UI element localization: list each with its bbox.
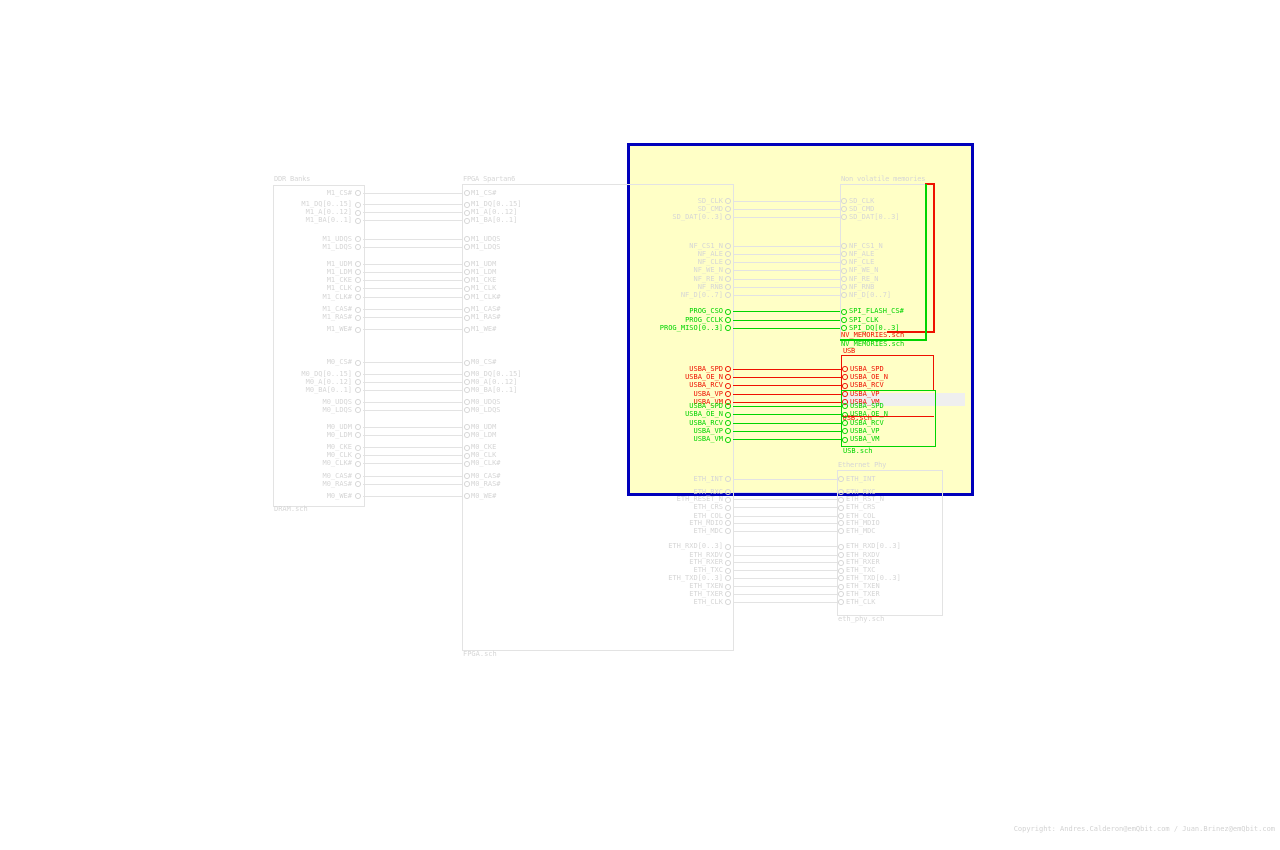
net-wire[interactable] (733, 209, 840, 210)
net-label-right[interactable]: USBA_OE_N (850, 411, 888, 418)
pin-glyph[interactable] (725, 391, 731, 397)
net-wire[interactable] (363, 402, 462, 403)
net-wire[interactable] (363, 362, 462, 363)
net-label-left[interactable]: NF_ALE (553, 251, 723, 258)
pin-glyph[interactable] (464, 315, 470, 321)
net-label-left[interactable]: M1_CLK (182, 285, 352, 292)
net-wire[interactable] (733, 385, 841, 386)
net-label-right[interactable]: M1_CLK# (471, 294, 501, 301)
pin-glyph[interactable] (841, 268, 847, 274)
net-wire[interactable] (733, 287, 840, 288)
pin-glyph[interactable] (838, 497, 844, 503)
net-wire[interactable] (733, 531, 837, 532)
net-wire[interactable] (363, 476, 462, 477)
net-wire[interactable] (363, 329, 462, 330)
net-label-right[interactable]: SD_CLK (849, 198, 874, 205)
pin-glyph[interactable] (725, 198, 731, 204)
net-wire[interactable] (363, 297, 462, 298)
net-label-right[interactable]: M1_CAS# (471, 306, 501, 313)
net-label-left[interactable]: M0_CLK (182, 452, 352, 459)
net-label-right[interactable]: M0_CLK# (471, 460, 501, 467)
pin-glyph[interactable] (355, 315, 361, 321)
net-label-left[interactable]: M1_LDM (182, 269, 352, 276)
pin-glyph[interactable] (355, 218, 361, 224)
net-wire[interactable] (363, 427, 462, 428)
net-label-left[interactable]: M0_A[0..12] (182, 379, 352, 386)
pin-glyph[interactable] (841, 276, 847, 282)
sheet-file-fpga[interactable]: FPGA.sch (463, 651, 497, 658)
net-label-left[interactable]: M1_CAS# (182, 306, 352, 313)
net-label-right[interactable]: SD_DAT[0..3] (849, 214, 900, 221)
net-wire[interactable] (733, 594, 837, 595)
net-label-left[interactable]: M0_CLK# (182, 460, 352, 467)
net-label-right[interactable]: M1_BA[0..1] (471, 217, 517, 224)
net-wire[interactable] (733, 246, 840, 247)
net-label-right[interactable]: SPI_CLK (849, 317, 879, 324)
net-wire[interactable] (363, 309, 462, 310)
pin-glyph[interactable] (725, 497, 731, 503)
pin-glyph[interactable] (842, 437, 848, 443)
net-wire[interactable] (733, 262, 840, 263)
net-label-right[interactable]: NF_CLE (849, 259, 874, 266)
pin-glyph[interactable] (725, 317, 731, 323)
net-label-left[interactable]: ETH_MDC (553, 528, 723, 535)
net-label-right[interactable]: M0_CLK (471, 452, 496, 459)
ghost-segment-red (933, 183, 935, 332)
net-label-right[interactable]: M1_UDM (471, 261, 496, 268)
net-wire[interactable] (363, 239, 462, 240)
net-label-left[interactable]: M1_WE# (182, 326, 352, 333)
sheet-title-usb_red[interactable]: USB (843, 348, 855, 355)
net-label-left[interactable]: NF_D[0..7] (553, 292, 723, 299)
pin-glyph[interactable] (355, 493, 361, 499)
pin-glyph[interactable] (464, 493, 470, 499)
net-label-left[interactable]: M0_UDQS (182, 399, 352, 406)
net-label-left[interactable]: SD_CLK (553, 198, 723, 205)
net-wire[interactable] (363, 193, 462, 194)
pin-glyph[interactable] (838, 568, 844, 574)
net-wire[interactable] (733, 279, 840, 280)
pin-glyph[interactable] (725, 383, 731, 389)
net-label-right[interactable]: NF_D[0..7] (849, 292, 891, 299)
net-wire[interactable] (733, 546, 837, 547)
pin-glyph[interactable] (355, 210, 361, 216)
pin-glyph[interactable] (725, 476, 731, 482)
net-label-left[interactable]: USBA_RCV (553, 420, 723, 427)
net-label-right[interactable]: SPI_FLASH_CS# (849, 308, 904, 315)
net-wire[interactable] (733, 586, 837, 587)
net-label-right[interactable]: M1_LDQS (471, 244, 501, 251)
net-label-right[interactable]: M0_CS# (471, 359, 496, 366)
net-wire[interactable] (363, 382, 462, 383)
pin-glyph[interactable] (464, 210, 470, 216)
net-label-right[interactable]: M1_UDQS (471, 236, 501, 243)
net-wire[interactable] (733, 423, 841, 424)
net-label-right[interactable]: ETH_MDIO (846, 520, 880, 527)
net-label-left[interactable]: M1_UDQS (182, 236, 352, 243)
pin-glyph[interactable] (464, 473, 470, 479)
net-label-left[interactable]: USBA_OE_N (553, 374, 723, 381)
net-label-left[interactable]: USBA_VP (553, 428, 723, 435)
net-label-left[interactable]: ETH_TXER (553, 591, 723, 598)
net-label-right[interactable]: ETH_CRS (846, 504, 876, 511)
sheet-file-eth[interactable]: eth_phy.sch (838, 616, 884, 623)
net-label-right[interactable]: SD_CMD (849, 206, 874, 213)
net-label-right[interactable]: USBA_OE_N (850, 374, 888, 381)
net-label-left[interactable]: M0_BA[0..1] (182, 387, 352, 394)
net-label-left[interactable]: PROG_CCLK (553, 317, 723, 324)
pin-glyph[interactable] (842, 391, 848, 397)
net-label-left[interactable]: SD_CMD (553, 206, 723, 213)
net-label-right[interactable]: USBA_RCV (850, 382, 884, 389)
pin-glyph[interactable] (838, 544, 844, 550)
net-wire[interactable] (733, 406, 841, 407)
pin-glyph[interactable] (464, 360, 470, 366)
net-label-left[interactable]: ETH_TXD[0..3] (553, 575, 723, 582)
pin-glyph[interactable] (725, 412, 731, 418)
floating-sheet-file-label: NV_MEMORIES.sch (841, 341, 904, 348)
net-label-right[interactable]: ETH_TXD[0..3] (846, 575, 901, 582)
net-label-left[interactable]: M1_UDM (182, 261, 352, 268)
net-label-left[interactable]: ETH_MDIO (553, 520, 723, 527)
net-label-left[interactable]: ETH_CRS (553, 504, 723, 511)
net-label-right[interactable]: ETH_INT (846, 476, 876, 483)
pin-glyph[interactable] (355, 202, 361, 208)
net-wire[interactable] (733, 431, 841, 432)
pin-glyph[interactable] (838, 584, 844, 590)
net-label-right[interactable]: M0_RAS# (471, 481, 501, 488)
net-label-right[interactable]: NF_ALE (849, 251, 874, 258)
net-label-left[interactable]: NF_WE_N (553, 267, 723, 274)
net-wire[interactable] (733, 369, 841, 370)
net-label-left[interactable]: NF_RNB (553, 284, 723, 291)
net-label-left[interactable]: USBA_SPD (553, 366, 723, 373)
net-wire[interactable] (733, 320, 840, 321)
net-wire[interactable] (363, 390, 462, 391)
net-wire[interactable] (733, 270, 840, 271)
pin-glyph[interactable] (838, 489, 844, 495)
net-wire[interactable] (733, 602, 837, 603)
sheet-file-dram[interactable]: DRAM.sch (274, 506, 308, 513)
pin-glyph[interactable] (464, 307, 470, 313)
net-label-left[interactable]: M1_LDQS (182, 244, 352, 251)
pin-glyph[interactable] (838, 513, 844, 519)
net-label-left[interactable]: USBA_OE_N (553, 411, 723, 418)
net-label-right[interactable]: USBA_VP (850, 391, 880, 398)
net-label-left[interactable]: SD_DAT[0..3] (553, 214, 723, 221)
pin-glyph[interactable] (464, 294, 470, 300)
net-label-right[interactable]: M0_A[0..12] (471, 379, 517, 386)
sheet-title-fpga[interactable]: FPGA Spartan6 (463, 176, 515, 183)
net-label-left[interactable]: M1_CLK# (182, 294, 352, 301)
pin-glyph[interactable] (725, 513, 731, 519)
net-label-left[interactable]: M1_BA[0..1] (182, 217, 352, 224)
net-label-right[interactable]: ETH_CLK (846, 599, 876, 606)
pin-glyph[interactable] (841, 251, 847, 257)
pin-glyph[interactable] (725, 568, 731, 574)
net-label-right[interactable]: M0_LDQS (471, 407, 501, 414)
copyright-text: Copyright: Andres.Calderon@emQbit.com / … (1014, 825, 1275, 833)
net-label-left[interactable]: PROG_CSO (553, 308, 723, 315)
net-label-right[interactable]: M0_UDM (471, 424, 496, 431)
pin-glyph[interactable] (355, 473, 361, 479)
net-label-right[interactable]: ETH_RXD[0..3] (846, 543, 901, 550)
pin-glyph[interactable] (842, 366, 848, 372)
net-label-left[interactable]: M0_WE# (182, 493, 352, 500)
net-label-left[interactable]: M1_RAS# (182, 314, 352, 321)
net-label-right[interactable]: M0_UDQS (471, 399, 501, 406)
pin-glyph[interactable] (464, 236, 470, 242)
pin-glyph[interactable] (842, 412, 848, 418)
net-label-left[interactable]: USBA_VP (553, 391, 723, 398)
net-label-left[interactable]: M1_CS# (182, 190, 352, 197)
pin-glyph[interactable] (464, 453, 470, 459)
schematic-canvas[interactable]: DDR BanksDRAM.schFPGA Spartan6FPGA.schNo… (0, 0, 1280, 850)
pin-glyph[interactable] (725, 437, 731, 443)
pin-glyph[interactable] (355, 286, 361, 292)
net-label-right[interactable]: M0_CKE (471, 444, 496, 451)
pin-glyph[interactable] (725, 544, 731, 550)
net-label-left[interactable]: NF_CLE (553, 259, 723, 266)
net-wire[interactable] (733, 394, 841, 395)
net-label-right[interactable]: M0_WE# (471, 493, 496, 500)
pin-glyph[interactable] (725, 284, 731, 290)
net-label-left[interactable]: NF_RE_N (553, 276, 723, 283)
net-label-right[interactable]: M0_CAS# (471, 473, 501, 480)
net-label-right[interactable]: M1_RAS# (471, 314, 501, 321)
net-wire[interactable] (733, 217, 840, 218)
pin-glyph[interactable] (841, 317, 847, 323)
pin-glyph[interactable] (464, 445, 470, 451)
net-label-right[interactable]: ETH_TXER (846, 591, 880, 598)
pin-glyph[interactable] (355, 461, 361, 467)
net-label-right[interactable]: NF_CS1_N (849, 243, 883, 250)
net-wire[interactable] (363, 484, 462, 485)
pin-glyph[interactable] (355, 307, 361, 313)
net-label-left[interactable]: ETH_RESET_N (553, 496, 723, 503)
pin-glyph[interactable] (355, 481, 361, 487)
net-wire[interactable] (733, 295, 840, 296)
net-wire[interactable] (363, 463, 462, 464)
net-label-right[interactable]: USBA_VP (850, 428, 880, 435)
pin-glyph[interactable] (838, 476, 844, 482)
pin-glyph[interactable] (725, 560, 731, 566)
pin-glyph[interactable] (725, 251, 731, 257)
net-label-left[interactable]: USBA_RCV (553, 382, 723, 389)
net-wire[interactable] (733, 555, 837, 556)
net-wire[interactable] (733, 479, 837, 480)
pin-glyph[interactable] (838, 505, 844, 511)
pin-glyph[interactable] (725, 366, 731, 372)
net-wire[interactable] (363, 264, 462, 265)
pin-glyph[interactable] (725, 243, 731, 249)
net-wire[interactable] (733, 402, 841, 403)
net-label-left[interactable]: ETH_RXD[0..3] (553, 543, 723, 550)
sheet-title-dram[interactable]: DDR Banks (274, 176, 310, 183)
net-label-right[interactable]: M1_WE# (471, 326, 496, 333)
net-label-right[interactable]: USBA_SPD (850, 403, 884, 410)
sheet-file-usb_green[interactable]: USB.sch (843, 448, 873, 455)
net-label-left[interactable]: M0_CS# (182, 359, 352, 366)
net-wire[interactable] (733, 328, 840, 329)
net-wire[interactable] (363, 204, 462, 205)
pin-glyph[interactable] (842, 403, 848, 409)
pin-glyph[interactable] (841, 309, 847, 315)
pin-glyph[interactable] (725, 552, 731, 558)
pin-glyph[interactable] (464, 327, 470, 333)
pin-glyph[interactable] (464, 461, 470, 467)
pin-glyph[interactable] (838, 560, 844, 566)
pin-glyph[interactable] (841, 284, 847, 290)
pin-glyph[interactable] (464, 202, 470, 208)
net-wire[interactable] (363, 447, 462, 448)
pin-glyph[interactable] (355, 445, 361, 451)
net-label-right[interactable]: ETH_RXER (846, 559, 880, 566)
net-label-right[interactable]: M1_CS# (471, 190, 496, 197)
sheet-title-nv[interactable]: Non volatile memories (841, 176, 925, 183)
pin-glyph[interactable] (725, 276, 731, 282)
net-wire[interactable] (363, 435, 462, 436)
ghost-segment-green (925, 184, 927, 340)
net-label-left[interactable]: USBA_SPD (553, 403, 723, 410)
pin-glyph[interactable] (725, 403, 731, 409)
net-wire[interactable] (733, 570, 837, 571)
net-label-left[interactable]: M0_CKE (182, 444, 352, 451)
pin-glyph[interactable] (725, 420, 731, 426)
net-label-right[interactable]: USBA_VM (850, 436, 880, 443)
net-wire[interactable] (733, 377, 841, 378)
net-label-right[interactable]: USBA_RCV (850, 420, 884, 427)
net-wire[interactable] (733, 254, 840, 255)
net-label-left[interactable]: M1_DQ[0..15] (182, 201, 352, 208)
pin-glyph[interactable] (841, 198, 847, 204)
net-wire[interactable] (733, 507, 837, 508)
net-label-right[interactable]: NF_RE_N (849, 276, 879, 283)
pin-glyph[interactable] (355, 236, 361, 242)
net-wire[interactable] (733, 201, 840, 202)
net-wire[interactable] (733, 516, 837, 517)
net-label-right[interactable]: NF_RNB (849, 284, 874, 291)
net-wire[interactable] (733, 492, 837, 493)
pin-glyph[interactable] (355, 294, 361, 300)
net-wire[interactable] (363, 247, 462, 248)
sheet-title-eth[interactable]: Ethernet Phy (838, 462, 886, 469)
net-label-left[interactable]: M0_LDM (182, 432, 352, 439)
pin-glyph[interactable] (355, 453, 361, 459)
net-label-right[interactable]: M1_CKE (471, 277, 496, 284)
net-label-left[interactable]: ETH_INT (553, 476, 723, 483)
net-label-left[interactable]: M1_CKE (182, 277, 352, 284)
net-wire[interactable] (363, 280, 462, 281)
net-wire[interactable] (733, 311, 840, 312)
net-wire[interactable] (733, 439, 841, 440)
pin-glyph[interactable] (838, 528, 844, 534)
net-label-left[interactable]: M0_CAS# (182, 473, 352, 480)
net-label-right[interactable]: NF_WE_N (849, 267, 879, 274)
net-label-right[interactable]: M1_LDM (471, 269, 496, 276)
net-wire[interactable] (363, 374, 462, 375)
net-wire[interactable] (733, 578, 837, 579)
net-label-right[interactable]: M1_A[0..12] (471, 209, 517, 216)
net-wire[interactable] (363, 288, 462, 289)
net-label-left[interactable]: M0_DQ[0..15] (182, 371, 352, 378)
net-label-right[interactable]: M1_CLK (471, 285, 496, 292)
net-label-left[interactable]: M0_UDM (182, 424, 352, 431)
net-label-left[interactable]: NF_CS1_N (553, 243, 723, 250)
net-label-right[interactable]: M0_LDM (471, 432, 496, 439)
net-label-left[interactable]: ETH_CLK (553, 599, 723, 606)
pin-glyph[interactable] (841, 243, 847, 249)
pin-glyph[interactable] (725, 528, 731, 534)
pin-glyph[interactable] (725, 489, 731, 495)
net-wire[interactable] (733, 562, 837, 563)
pin-glyph[interactable] (464, 286, 470, 292)
net-wire[interactable] (363, 455, 462, 456)
net-label-left[interactable]: PROG_MISO[0..3] (553, 325, 723, 332)
pin-glyph[interactable] (355, 360, 361, 366)
net-label-left[interactable]: M1_A[0..12] (182, 209, 352, 216)
pin-glyph[interactable] (725, 584, 731, 590)
net-wire[interactable] (363, 410, 462, 411)
net-label-right[interactable]: USBA_SPD (850, 366, 884, 373)
floating-sheet-file-label: NV_MEMORIES.sch (841, 332, 904, 339)
net-label-left[interactable]: M0_LDQS (182, 407, 352, 414)
net-wire[interactable] (733, 414, 841, 415)
pin-glyph[interactable] (464, 481, 470, 487)
net-wire[interactable] (363, 220, 462, 221)
net-wire[interactable] (733, 523, 837, 524)
net-label-left[interactable]: USBA_VM (553, 436, 723, 443)
net-label-right[interactable]: M0_DQ[0..15] (471, 371, 522, 378)
pin-glyph[interactable] (842, 383, 848, 389)
net-wire[interactable] (363, 272, 462, 273)
net-wire[interactable] (363, 317, 462, 318)
pin-glyph[interactable] (725, 505, 731, 511)
pin-glyph[interactable] (355, 327, 361, 333)
pin-glyph[interactable] (842, 420, 848, 426)
pin-glyph[interactable] (464, 218, 470, 224)
ghost-segment-red (933, 355, 935, 390)
net-wire[interactable] (363, 496, 462, 497)
net-label-left[interactable]: ETH_RXER (553, 559, 723, 566)
net-label-right[interactable]: M0_BA[0..1] (471, 387, 517, 394)
net-wire[interactable] (363, 212, 462, 213)
pin-glyph[interactable] (725, 268, 731, 274)
net-label-right[interactable]: ETH_MDC (846, 528, 876, 535)
net-label-left[interactable]: M0_RAS# (182, 481, 352, 488)
pin-glyph[interactable] (464, 244, 470, 250)
net-label-right[interactable]: ETH_RST_N (846, 496, 884, 503)
pin-glyph[interactable] (838, 552, 844, 558)
net-label-right[interactable]: M1_DQ[0..15] (471, 201, 522, 208)
pin-glyph[interactable] (725, 309, 731, 315)
pin-glyph[interactable] (355, 244, 361, 250)
net-wire[interactable] (733, 499, 837, 500)
